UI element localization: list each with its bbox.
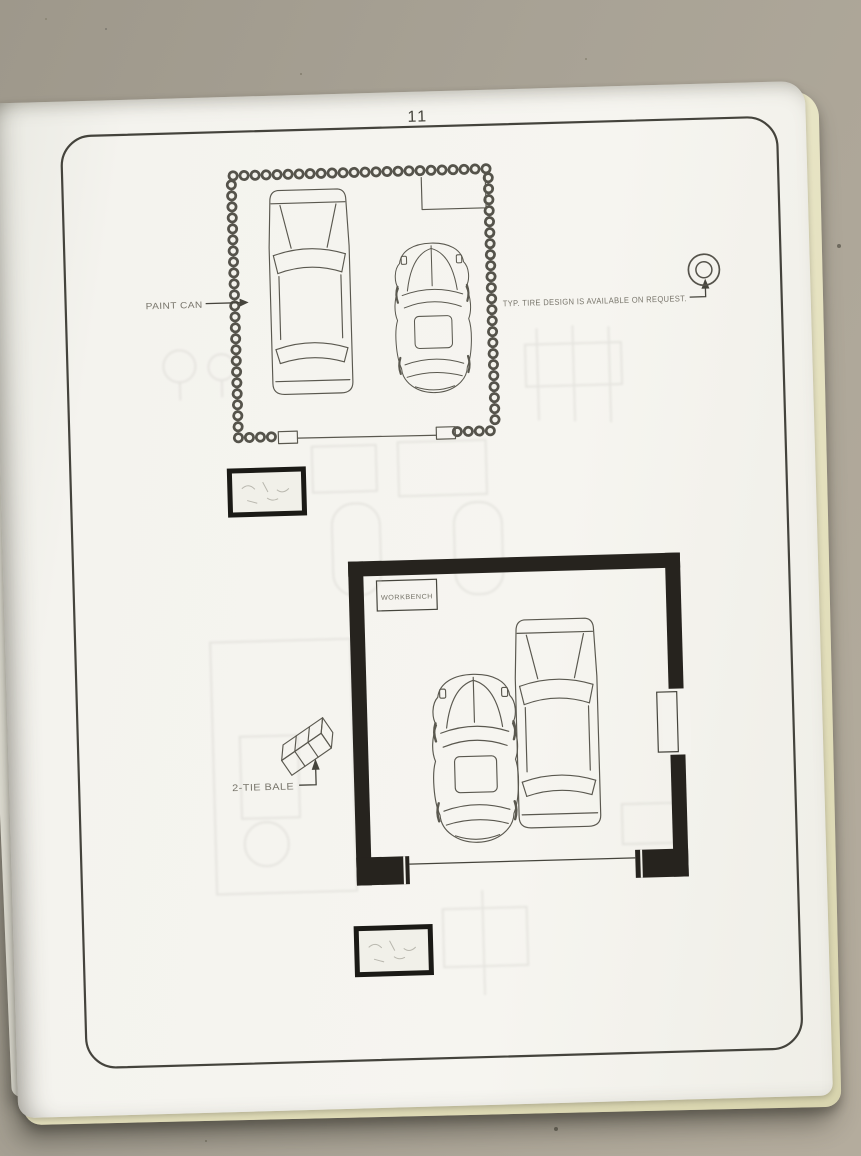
lower-garage-door-opening: [409, 858, 635, 864]
side-door: [657, 688, 692, 755]
table-speckles: [105, 28, 107, 30]
car-top-view-beetle: [393, 242, 473, 394]
wall-joint-lines: [404, 850, 642, 885]
callout-arrow-line: [689, 288, 705, 297]
arrow-head-icon: [240, 298, 249, 306]
lower-garage-plan: WORKBENCH: [348, 552, 695, 885]
workbench-label: WORKBENCH: [381, 593, 433, 601]
paint-can-label: PAINT CAN: [146, 300, 203, 312]
solid-wall-icon: [348, 552, 689, 885]
car-top-view-classic: [268, 189, 354, 395]
booklet-page: 11: [0, 81, 833, 1118]
arrow-head-icon: [701, 279, 709, 289]
tire-note-label: TYP. TIRE DESIGN IS AVAILABLE ON REQUEST…: [503, 293, 687, 308]
stamp-box-lower: [356, 927, 431, 975]
callout-arrow-line: [299, 769, 316, 785]
car-top-view-beetle: [431, 673, 521, 843]
upper-garage-plan: [231, 169, 495, 445]
photo-scene: 11: [0, 0, 861, 1156]
car-top-view-classic: [514, 618, 601, 828]
upper-workbench-outline: [421, 176, 486, 210]
bale-callout: 2-TIE BALE: [230, 717, 341, 794]
tire-icon: [688, 254, 720, 286]
page-number: 11: [407, 108, 428, 126]
straw-bale-icon: [275, 718, 340, 776]
tire-design-callout: TYP. TIRE DESIGN IS AVAILABLE ON REQUEST…: [502, 254, 721, 309]
stamp-box-upper: [229, 469, 304, 515]
bale-label: 2-TIE BALE: [232, 781, 294, 794]
page-diagram-svg: 11: [0, 81, 833, 1118]
workbench-box: WORKBENCH: [376, 579, 437, 611]
